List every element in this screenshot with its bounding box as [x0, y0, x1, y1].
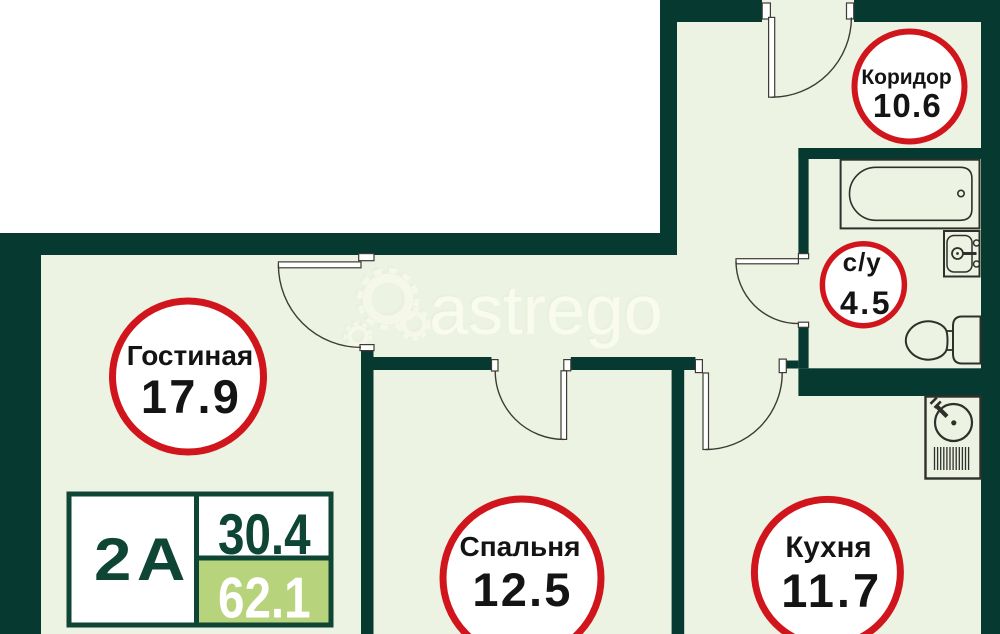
svg-text:2A: 2A	[94, 526, 191, 593]
svg-text:12.5: 12.5	[472, 563, 572, 616]
svg-text:astrego: astrego	[429, 271, 662, 349]
svg-text:Коридор: Коридор	[861, 66, 951, 89]
svg-text:4.5: 4.5	[840, 285, 892, 321]
svg-text:Гостиная: Гостиная	[127, 340, 254, 371]
svg-text:с/у: с/у	[843, 247, 882, 277]
svg-text:Спальня: Спальня	[460, 531, 581, 562]
svg-text:10.6: 10.6	[873, 87, 942, 124]
svg-text:30.4: 30.4	[218, 503, 311, 567]
svg-text:62.1: 62.1	[218, 566, 311, 630]
svg-text:Кухня: Кухня	[785, 531, 871, 564]
svg-text:11.7: 11.7	[781, 564, 882, 617]
svg-text:17.9: 17.9	[141, 370, 241, 423]
